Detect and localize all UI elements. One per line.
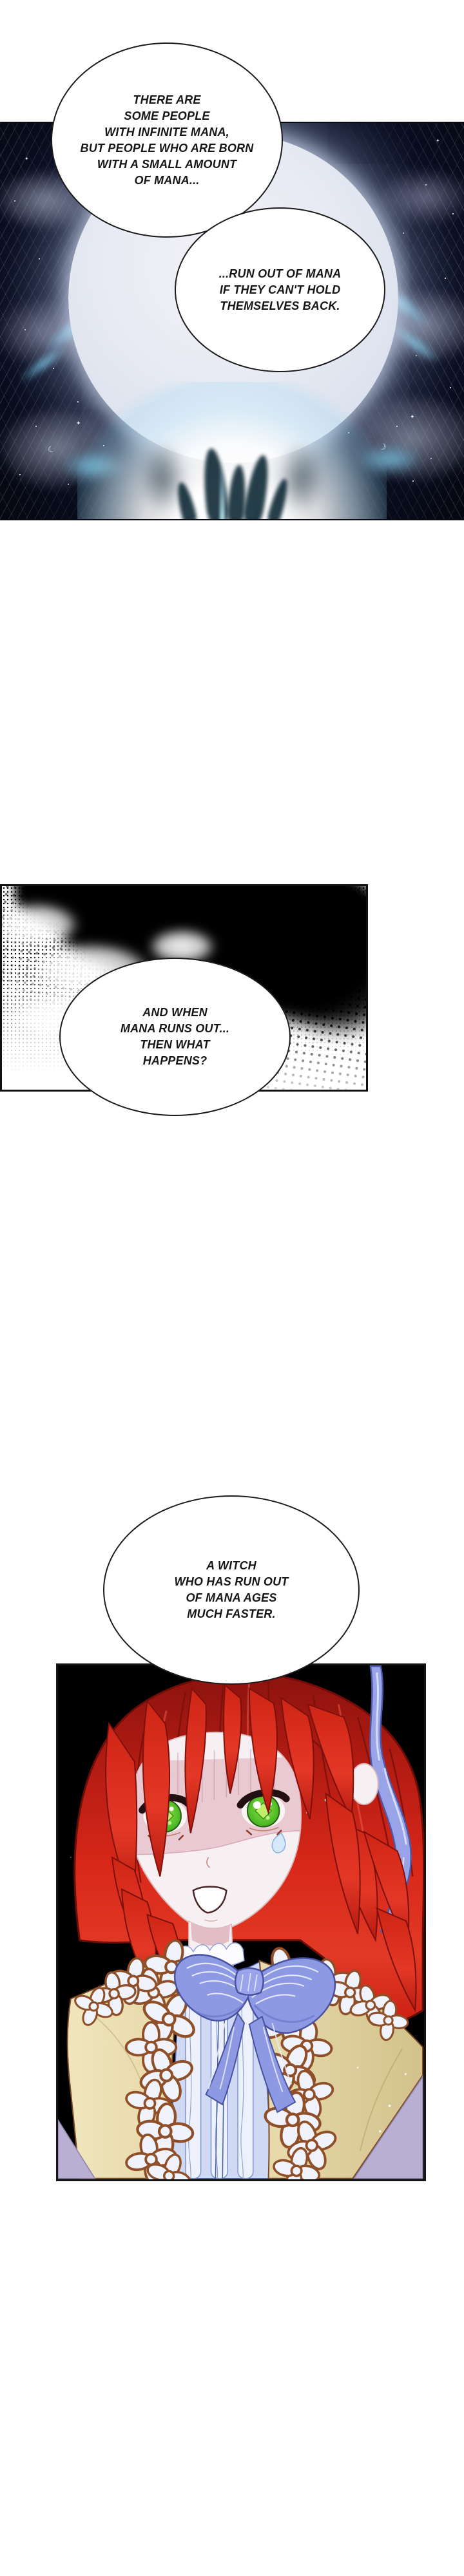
witch-portrait-illustration (58, 1665, 424, 2179)
ink-mass (279, 912, 368, 1028)
ear (350, 1764, 378, 1804)
bubble-line: WITH INFINITE MANA, (104, 124, 229, 140)
bubble-line: WITH A SMALL AMOUNT (97, 156, 237, 173)
bubble-line: MUCH FASTER. (187, 1606, 275, 1622)
bubble-line: OF MANA... (135, 173, 200, 189)
sparkle-icon: ✦ (76, 421, 81, 426)
bubble-line: A WITCH (206, 1558, 256, 1574)
sparkle-icon: ✦ (24, 156, 29, 162)
bubble-line: THEN WHAT (140, 1037, 209, 1053)
panel-witch-portrait (56, 1663, 426, 2181)
bubble-line: THEMSELVES BACK. (220, 298, 340, 314)
bubble-line: OF MANA AGES (186, 1590, 276, 1606)
star-field (0, 123, 1, 124)
ground-glow (77, 382, 387, 520)
bubble-line: ...RUN OUT OF MANA (219, 266, 342, 282)
speech-bubble: ...RUN OUT OF MANA IF THEY CAN'T HOLD TH… (175, 207, 385, 372)
bubble-line: BUT PEOPLE WHO ARE BORN (81, 140, 254, 156)
bubble-line: IF THEY CAN'T HOLD (220, 282, 341, 298)
bubble-line: THERE ARE (133, 92, 200, 108)
speech-bubble: AND WHEN MANA RUNS OUT... THEN WHAT HAPP… (59, 958, 291, 1116)
sparkle-icon: ✦ (410, 414, 415, 420)
bubble-line: WHO HAS RUN OUT (175, 1574, 289, 1590)
bubble-line: HAPPENS? (143, 1053, 208, 1069)
speech-bubble: A WITCH WHO HAS RUN OUT OF MANA AGES MUC… (103, 1495, 360, 1685)
bubble-line: SOME PEOPLE (124, 108, 209, 124)
speech-bubble: THERE ARE SOME PEOPLE WITH INFINITE MANA… (51, 43, 283, 238)
bubble-line: AND WHEN (142, 1005, 208, 1021)
bubble-line: MANA RUNS OUT... (121, 1021, 229, 1037)
cyan-ray (220, 459, 225, 520)
webtoon-page: ☾ ☾ ✦ ✦ ✦ ✦ THERE ARE SOME PEOPLE WITH I… (0, 0, 464, 2576)
sparkle-icon: ✦ (436, 138, 440, 144)
